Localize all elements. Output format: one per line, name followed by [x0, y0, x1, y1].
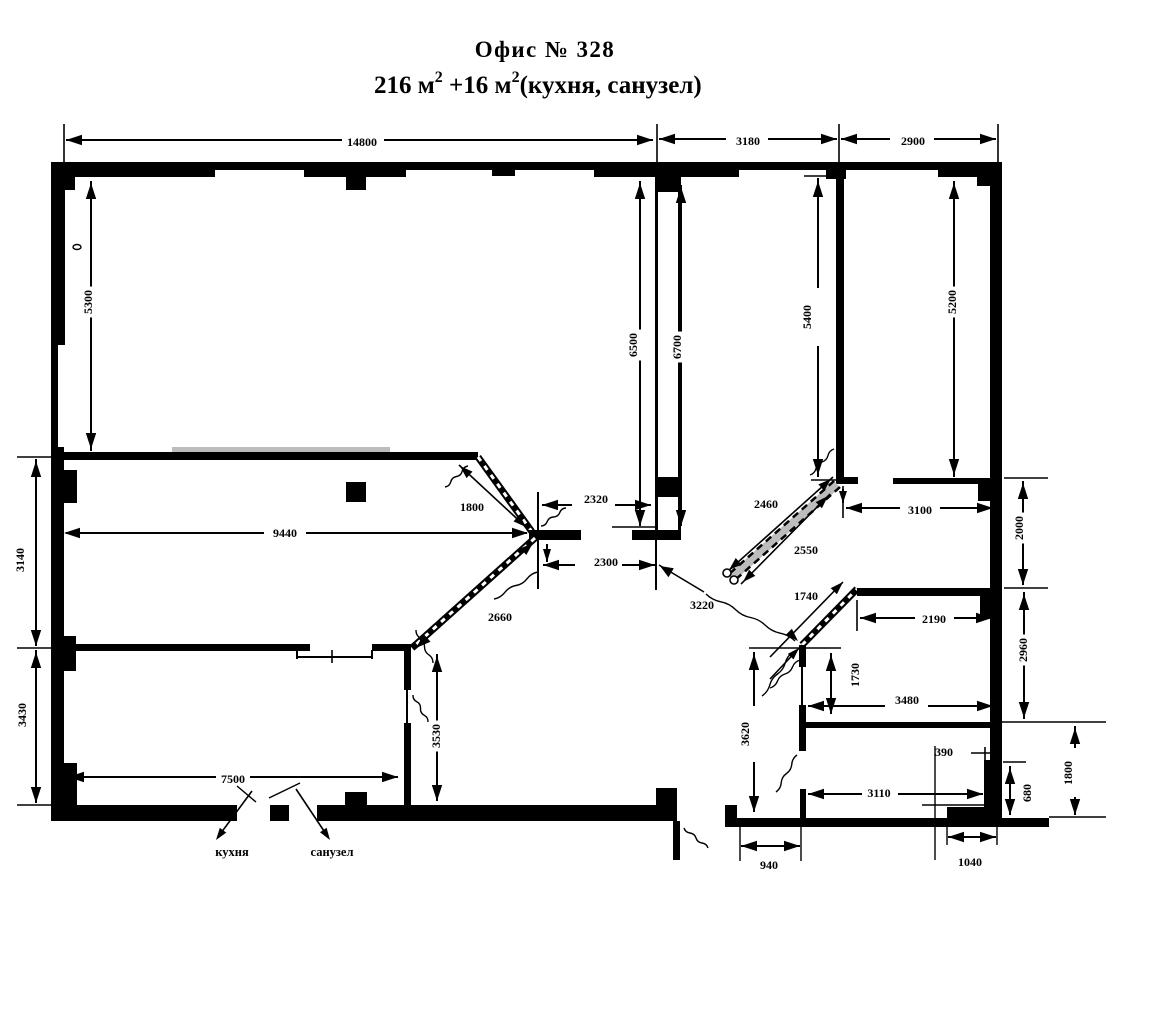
- svg-text:1730: 1730: [848, 663, 862, 687]
- svg-text:2460: 2460: [754, 497, 778, 511]
- svg-text:санузел: санузел: [311, 845, 354, 859]
- svg-text:9440: 9440: [273, 526, 297, 540]
- svg-text:3480: 3480: [895, 693, 919, 707]
- svg-text:1800: 1800: [460, 500, 484, 514]
- svg-text:2300: 2300: [594, 555, 618, 569]
- svg-text:5400: 5400: [800, 305, 814, 329]
- svg-text:3220: 3220: [690, 598, 714, 612]
- svg-text:680: 680: [1020, 784, 1034, 802]
- svg-text:3430: 3430: [15, 703, 29, 727]
- svg-text:3110: 3110: [867, 786, 890, 800]
- svg-text:1800: 1800: [1061, 761, 1075, 785]
- svg-text:3620: 3620: [738, 722, 752, 746]
- svg-text:2660: 2660: [488, 610, 512, 624]
- svg-text:2550: 2550: [794, 543, 818, 557]
- svg-text:14800: 14800: [347, 135, 377, 149]
- svg-text:390: 390: [935, 745, 953, 759]
- svg-text:2960: 2960: [1016, 638, 1030, 662]
- svg-text:5200: 5200: [945, 290, 959, 314]
- svg-text:2320: 2320: [584, 492, 608, 506]
- svg-text:7500: 7500: [221, 772, 245, 786]
- svg-text:Офис № 328: Офис № 328: [475, 37, 615, 62]
- svg-text:2190: 2190: [922, 612, 946, 626]
- svg-text:6700: 6700: [670, 335, 684, 359]
- svg-text:3140: 3140: [13, 548, 27, 572]
- svg-text:2000: 2000: [1012, 516, 1026, 540]
- svg-text:3180: 3180: [736, 134, 760, 148]
- svg-text:3530: 3530: [429, 724, 443, 748]
- svg-text:5300: 5300: [81, 290, 95, 314]
- svg-text:940: 940: [760, 858, 778, 872]
- svg-text:6500: 6500: [626, 333, 640, 357]
- svg-text:кухня: кухня: [215, 845, 249, 859]
- svg-text:1740: 1740: [794, 589, 818, 603]
- svg-text:1040: 1040: [958, 855, 982, 869]
- svg-text:3100: 3100: [908, 503, 932, 517]
- svg-text:216 м2 +16 м2(кухня, санузел): 216 м2 +16 м2(кухня, санузел): [374, 69, 702, 99]
- svg-text:2900: 2900: [901, 134, 925, 148]
